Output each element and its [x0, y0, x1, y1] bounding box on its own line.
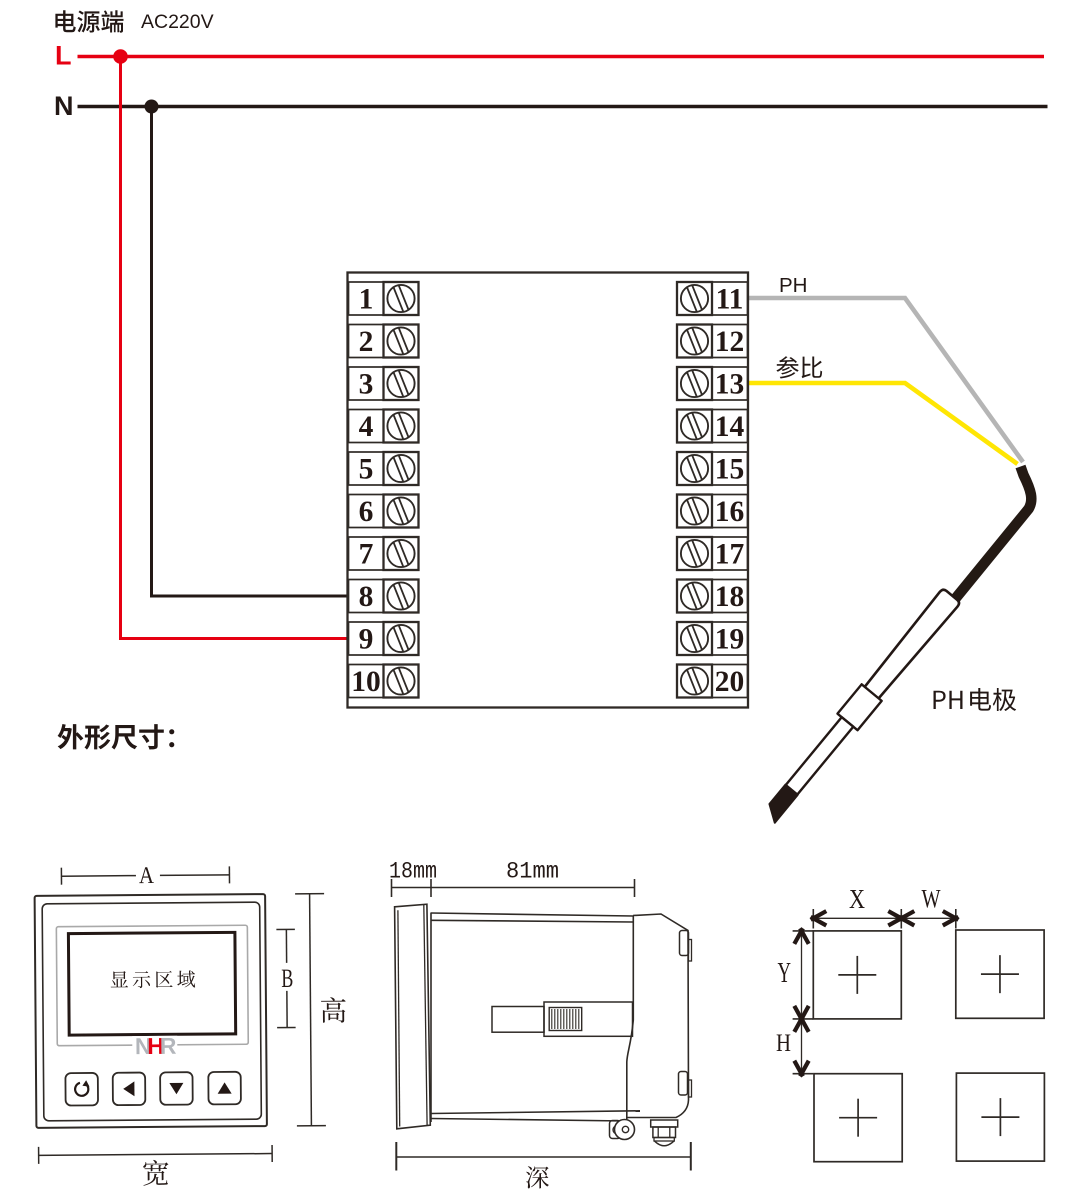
svg-text:81mm: 81mm [506, 859, 559, 885]
svg-text:3: 3 [359, 369, 374, 401]
svg-text:1: 1 [359, 284, 374, 316]
svg-text:12: 12 [715, 326, 745, 358]
svg-text:10: 10 [351, 666, 381, 698]
svg-text:AC220V: AC220V [141, 11, 214, 33]
svg-text:B: B [281, 963, 293, 993]
svg-text:13: 13 [715, 369, 745, 401]
svg-text:N: N [54, 91, 74, 121]
svg-text:A: A [139, 863, 155, 889]
svg-text:20: 20 [715, 666, 745, 698]
svg-text:17: 17 [715, 539, 745, 571]
svg-text:5: 5 [359, 454, 374, 486]
svg-text:18: 18 [715, 581, 745, 613]
svg-text:4: 4 [359, 411, 374, 443]
svg-text:2: 2 [359, 326, 374, 358]
svg-text:Y: Y [778, 957, 792, 989]
svg-text:11: 11 [716, 284, 744, 316]
svg-text:18mm: 18mm [389, 859, 437, 885]
svg-text:16: 16 [715, 496, 745, 528]
svg-text:H: H [776, 1030, 791, 1057]
svg-text:7: 7 [359, 539, 374, 571]
svg-text:X: X [849, 884, 865, 914]
svg-text:19: 19 [715, 624, 745, 656]
svg-text:8: 8 [359, 581, 374, 613]
svg-text:15: 15 [715, 454, 745, 486]
svg-text:PH: PH [779, 274, 807, 297]
svg-text:6: 6 [359, 496, 374, 528]
svg-text:L: L [55, 41, 72, 71]
svg-text:W: W [922, 884, 941, 914]
svg-text:R: R [160, 1033, 177, 1059]
svg-text:9: 9 [359, 624, 374, 656]
svg-text:14: 14 [715, 411, 745, 443]
